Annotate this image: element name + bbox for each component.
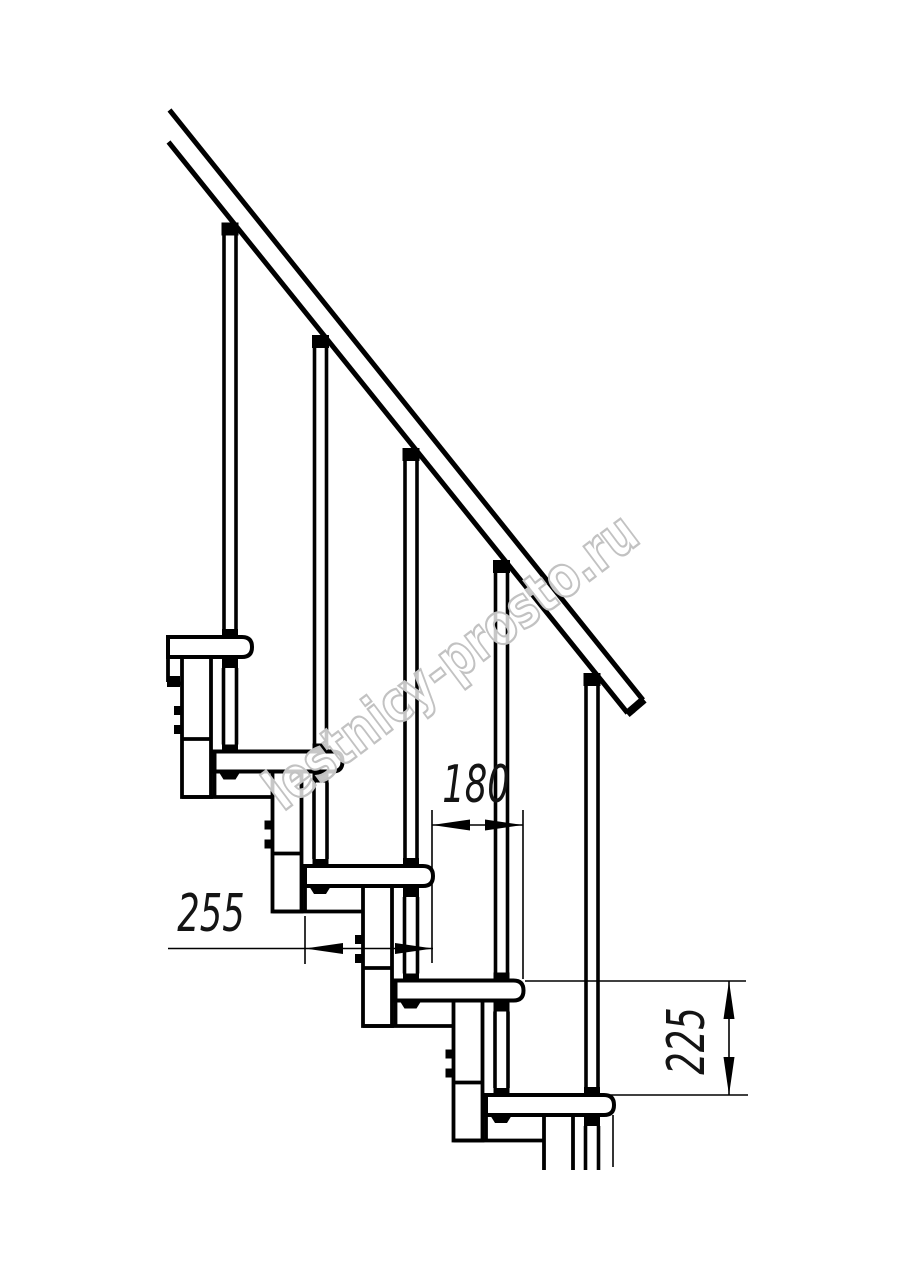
baluster-top-flange [493,560,510,573]
baluster [222,223,239,638]
arrowhead-left [432,820,470,831]
arrowhead-up [724,981,735,1019]
arrowhead-left [305,943,343,954]
arrowhead-down [724,1057,735,1095]
dimension-label-255: 255 [177,884,244,944]
dimension-225: 225 [525,981,748,1095]
staircase-technical-drawing: 180 255 225 lestnicy-prosto.ru [0,0,914,1280]
upper-module-remnant [167,657,182,687]
stringer-module [544,1115,573,1170]
arrowhead-right [485,820,523,831]
baluster-top-flange [584,673,601,686]
tread-fixing-tab [400,1001,422,1009]
support-tube [403,886,419,981]
baluster-top-flange [312,335,329,348]
support-tube [222,657,238,752]
tread [168,637,252,657]
tread-fixing-tab [309,886,331,894]
support-tube [494,1001,510,1096]
handrail-end-cap [627,700,644,715]
tread-fixing-tab [490,1115,512,1123]
baluster-top-flange [403,448,420,461]
tread [305,866,433,886]
tread [396,981,524,1001]
baluster [584,673,601,1095]
dimension-180: 180 [432,755,523,979]
dimension-label-180: 180 [442,755,509,815]
tread-fixing-tab [219,772,241,780]
dimension-label-225: 225 [657,1007,717,1074]
baluster [312,335,329,752]
tread [486,1095,614,1115]
staircase-drawing-page: 180 255 225 lestnicy-prosto.ru [0,0,914,1280]
arrowhead-right [395,943,433,954]
support-tube [584,1115,600,1170]
baluster-top-flange [222,223,239,236]
